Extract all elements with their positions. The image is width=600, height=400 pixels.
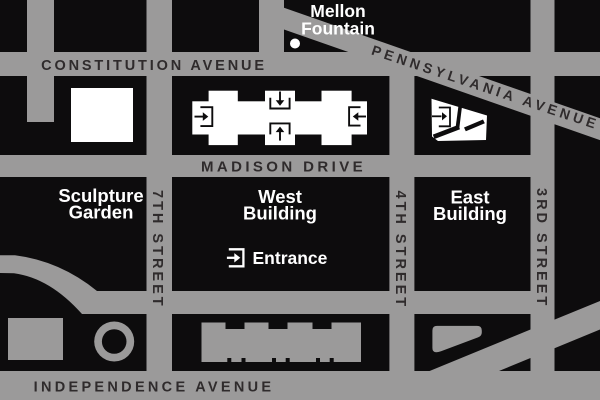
svg-text:Building: Building xyxy=(243,203,317,224)
svg-text:3RD STREET: 3RD STREET xyxy=(533,188,549,308)
svg-text:4TH STREET: 4TH STREET xyxy=(392,191,408,310)
svg-text:CONSTITUTION AVENUE: CONSTITUTION AVENUE xyxy=(41,58,267,74)
svg-text:INDEPENDENCE AVENUE: INDEPENDENCE AVENUE xyxy=(34,379,275,395)
svg-text:MADISON DRIVE: MADISON DRIVE xyxy=(201,159,366,176)
svg-text:Fountain: Fountain xyxy=(301,18,375,38)
svg-text:Garden: Garden xyxy=(69,202,134,223)
svg-text:Entrance: Entrance xyxy=(253,248,328,268)
svg-text:Building: Building xyxy=(433,203,507,224)
svg-text:7TH STREET: 7TH STREET xyxy=(149,190,165,309)
